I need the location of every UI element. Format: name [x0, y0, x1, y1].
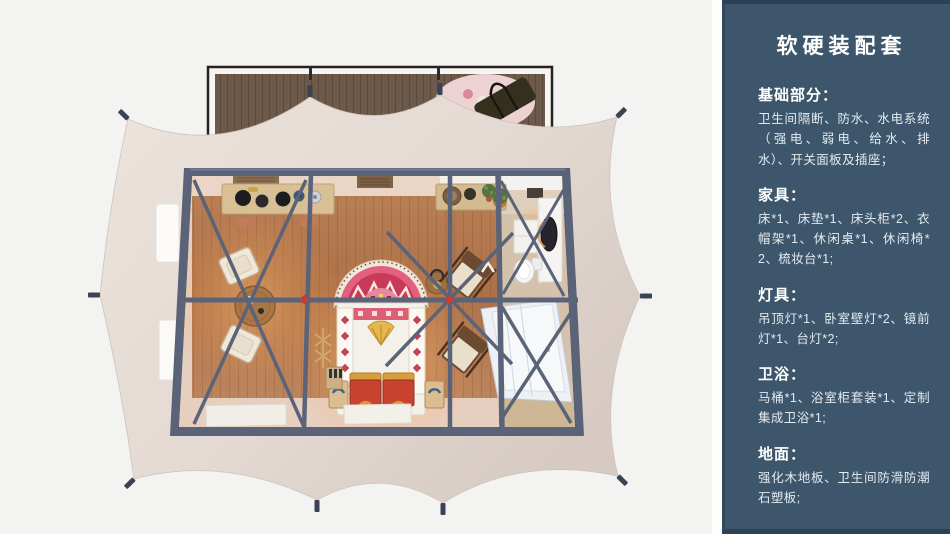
section-basics-heading: 基础部分：: [758, 84, 930, 105]
section-flooring-heading: 地面：: [758, 443, 930, 464]
section-bathroom: 卫浴： 马桶*1、浴室柜套装*1、定制集成卫浴*1;: [758, 363, 930, 429]
section-lighting: 灯具： 吊顶灯*1、卧室壁灯*2、镜前灯*1、台灯*2;: [758, 284, 930, 350]
bottle-rack: [326, 367, 342, 389]
section-flooring: 地面： 强化木地板、卫生间防滑防潮石塑板;: [758, 443, 930, 509]
section-lighting-body: 吊顶灯*1、卧室壁灯*2、镜前灯*1、台灯*2;: [758, 309, 930, 350]
section-furniture: 家具： 床*1、床垫*1、床头柜*2、衣帽架*1、休闲桌*1、休闲椅*2、梳妆台…: [758, 184, 930, 270]
panel-gutter: [712, 0, 722, 534]
section-basics: 基础部分： 卫生间隔断、防水、水电系统（强电、弱电、给水、排水）、开关面板及插座…: [758, 84, 930, 170]
page: 软硬装配套 基础部分： 卫生间隔断、防水、水电系统（强电、弱电、给水、排水）、开…: [0, 0, 950, 534]
section-furniture-heading: 家具：: [758, 184, 930, 205]
panel-title: 软硬装配套: [753, 30, 930, 60]
section-bathroom-heading: 卫浴：: [758, 363, 930, 384]
room-cutaway: [164, 168, 584, 450]
spec-panel: 软硬装配套 基础部分： 卫生间隔断、防水、水电系统（强电、弱电、给水、排水）、开…: [722, 0, 950, 534]
floorplan-render: [0, 0, 712, 534]
tent-window-flap: [156, 204, 179, 262]
tent-topview-svg: [0, 0, 712, 534]
section-lighting-heading: 灯具：: [758, 284, 930, 305]
section-bathroom-body: 马桶*1、浴室柜套装*1、定制集成卫浴*1;: [758, 388, 930, 429]
section-furniture-body: 床*1、床垫*1、床头柜*2、衣帽架*1、休闲桌*1、休闲椅*2、梳妆台*1;: [758, 209, 930, 270]
section-flooring-body: 强化木地板、卫生间防滑防潮石塑板;: [758, 468, 930, 509]
section-basics-body: 卫生间隔断、防水、水电系统（强电、弱电、给水、排水）、开关面板及插座；: [758, 109, 930, 170]
